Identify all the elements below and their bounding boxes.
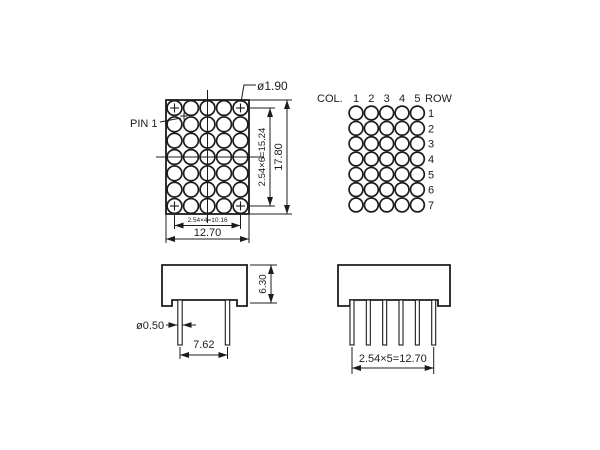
lead-pin bbox=[178, 300, 182, 345]
pin-map-dot bbox=[349, 183, 363, 197]
pin-map-dot bbox=[349, 167, 363, 181]
pin-map-dot bbox=[411, 167, 425, 181]
pin-map-dot bbox=[411, 152, 425, 166]
pin-diameter-label: ø0.50 bbox=[136, 320, 164, 332]
lead-pin bbox=[415, 300, 419, 345]
pin-map-dot bbox=[364, 167, 378, 181]
lead-pin bbox=[399, 300, 403, 345]
led-dot bbox=[217, 199, 232, 214]
led-dot bbox=[167, 182, 182, 197]
pin-map-dot bbox=[380, 183, 394, 197]
led-dot bbox=[184, 166, 199, 181]
front-view: PIN 1 ø1.90 2.54×6=15.24 17.80 2.54×4=10… bbox=[130, 79, 292, 243]
row-number: 6 bbox=[428, 185, 434, 197]
pin-map-dot-grid bbox=[349, 106, 424, 212]
col-header-label: COL. bbox=[317, 93, 343, 105]
row-number: 7 bbox=[428, 200, 434, 212]
pin-map-dot bbox=[349, 106, 363, 120]
col-number: 1 bbox=[353, 93, 359, 105]
body-height-label: 6.30 bbox=[258, 274, 269, 294]
pin-map-dot bbox=[380, 121, 394, 135]
pin-map-dot bbox=[395, 106, 409, 120]
dot-matrix-mechanical-drawing: PIN 1 ø1.90 2.54×6=15.24 17.80 2.54×4=10… bbox=[0, 0, 600, 450]
pin-map-dot bbox=[395, 198, 409, 212]
pin-map-dot bbox=[395, 152, 409, 166]
pin-map-dot bbox=[395, 121, 409, 135]
pin-pitch-label: 2.54×5=12.70 bbox=[359, 353, 427, 365]
dot-diameter-label: ø1.90 bbox=[257, 79, 288, 93]
pin-map-dot bbox=[411, 183, 425, 197]
pin-map-dot bbox=[364, 152, 378, 166]
bottom-view: 2.54×5=12.70 bbox=[338, 265, 450, 374]
led-dot bbox=[167, 133, 182, 148]
pin-map-dot bbox=[380, 167, 394, 181]
led-dot bbox=[167, 166, 182, 181]
lead-pin bbox=[432, 300, 436, 345]
led-dot bbox=[233, 133, 248, 148]
pin-map-dot bbox=[349, 137, 363, 151]
pin-map-dot bbox=[364, 137, 378, 151]
led-dot bbox=[184, 117, 199, 132]
pin-map-dot bbox=[380, 152, 394, 166]
pin-map-dot bbox=[380, 198, 394, 212]
column-numbers: 12345 bbox=[353, 93, 421, 105]
pin1-label: PIN 1 bbox=[130, 118, 158, 130]
row-number: 2 bbox=[428, 123, 434, 135]
col-number: 2 bbox=[368, 93, 374, 105]
lead-pin bbox=[350, 300, 354, 345]
row-number: 3 bbox=[428, 139, 434, 151]
row-number: 5 bbox=[428, 169, 434, 181]
led-dot bbox=[184, 199, 199, 214]
pin-map-dot bbox=[395, 137, 409, 151]
led-dot bbox=[217, 182, 232, 197]
led-dot bbox=[233, 182, 248, 197]
side-view: 6.30 ø0.50 7.62 bbox=[136, 265, 277, 359]
pin-map-dot bbox=[364, 198, 378, 212]
row-pitch-label: 2.54×6=15.24 bbox=[257, 128, 268, 187]
pin-map-dot bbox=[411, 121, 425, 135]
led-dot bbox=[217, 166, 232, 181]
led-dot bbox=[233, 166, 248, 181]
led-dot bbox=[217, 101, 232, 116]
pin-map-dot bbox=[349, 152, 363, 166]
led-dot bbox=[217, 117, 232, 132]
led-dot bbox=[184, 182, 199, 197]
row-numbers: 1234567 bbox=[428, 108, 434, 212]
bottom-view-pins bbox=[350, 300, 436, 345]
pin-map-diagram: COL. ROW 12345 1234567 bbox=[317, 93, 453, 212]
col-number: 3 bbox=[384, 93, 390, 105]
pin-map-dot bbox=[364, 106, 378, 120]
pin-map-dot bbox=[349, 121, 363, 135]
row-number: 1 bbox=[428, 108, 434, 120]
overall-height-label: 17.80 bbox=[273, 143, 285, 171]
pin-row-spacing-label: 7.62 bbox=[193, 339, 214, 351]
pin-map-dot bbox=[411, 106, 425, 120]
pin-map-dot bbox=[380, 106, 394, 120]
pin-map-dot bbox=[395, 167, 409, 181]
side-body-outline bbox=[162, 265, 247, 306]
row-header-label: ROW bbox=[425, 93, 453, 105]
pin-map-dot bbox=[380, 137, 394, 151]
pin-map-dot bbox=[349, 198, 363, 212]
led-dot bbox=[217, 133, 232, 148]
led-dot bbox=[233, 117, 248, 132]
pin-map-dot bbox=[395, 183, 409, 197]
led-dot bbox=[184, 101, 199, 116]
pin-map-dot bbox=[411, 137, 425, 151]
datasheet-page: PIN 1 ø1.90 2.54×6=15.24 17.80 2.54×4=10… bbox=[0, 0, 600, 450]
pin-map-dot bbox=[364, 183, 378, 197]
col-pitch-label: 2.54×4=10.16 bbox=[187, 217, 228, 224]
pin-map-dot bbox=[364, 121, 378, 135]
lead-pin bbox=[225, 300, 229, 345]
col-number: 4 bbox=[399, 93, 405, 105]
led-dot bbox=[184, 133, 199, 148]
overall-width-label: 12.70 bbox=[194, 227, 222, 239]
lead-pin bbox=[383, 300, 387, 345]
lead-pin bbox=[366, 300, 370, 345]
col-number: 5 bbox=[414, 93, 420, 105]
pin-map-dot bbox=[411, 198, 425, 212]
row-number: 4 bbox=[428, 154, 434, 166]
